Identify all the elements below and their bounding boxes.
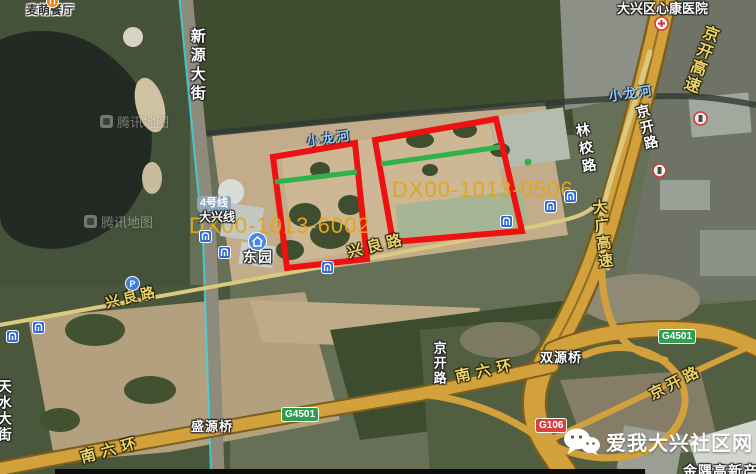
tencent-maps-watermark: 腾讯地图: [100, 112, 169, 131]
map-canvas: [0, 0, 756, 474]
tencent-maps-watermark: 腾讯地图: [84, 212, 153, 231]
bottom-black-bar: [55, 469, 645, 474]
parcel-id-label-6002: DX00-1013-6002: [189, 213, 371, 239]
green-dot: [525, 159, 532, 166]
tencent-maps-logo-icon: [100, 115, 113, 128]
route-badge-g4501-east: G4501: [658, 329, 696, 344]
tencent-maps-watermark-text: 腾讯地图: [101, 212, 153, 231]
community-site-watermark-text: 爱我大兴社区网: [606, 427, 753, 456]
route-badge-g4501-west: G4501: [281, 407, 319, 422]
parcel-id-label-0506: DX00-1013-0506: [392, 177, 574, 203]
satellite-map-screenshot: DX00-1013-6002 DX00-1013-0506 4号线 麦萌餐厅大兴…: [0, 0, 756, 474]
tencent-maps-watermark-text: 腾讯地图: [117, 112, 169, 131]
metro-line-4-badge: 4号线: [197, 196, 231, 211]
wechat-icon: [563, 428, 601, 455]
community-site-watermark: 爱我大兴社区网: [563, 427, 753, 456]
tencent-maps-logo-icon: [84, 215, 97, 228]
